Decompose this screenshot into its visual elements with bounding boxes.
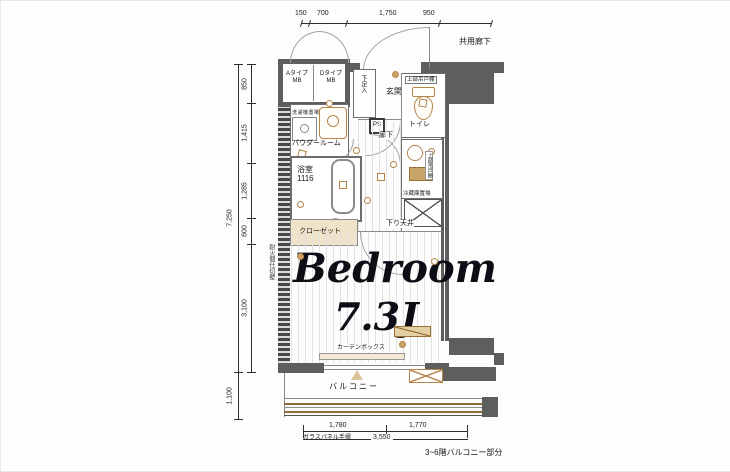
shoe-cabinet-label: 下足入 [359,75,366,93]
left-balcony-tick [234,419,243,420]
dim-left-3100: 3,100 [242,299,249,317]
balcony-partition-pillar [482,397,498,417]
entrance-label: 玄関 [386,87,402,96]
balcony-window-line [324,365,425,366]
kitchen-shelf-label: 上部吊戸棚 [425,151,433,180]
vanity-sink [327,115,339,127]
entrance-door-arc [363,27,430,70]
bedroom-name: Bedroom [293,245,443,292]
toilet-symbol [418,98,427,107]
balcony-rail-line-tan [284,411,498,413]
fridge-label: 冷蔵庫置場 [403,191,431,197]
symbol-dot [326,100,333,107]
bathroom-drain-symbol [297,201,304,208]
dim-top-150: 150 [295,10,307,17]
meter-box-a-sub: MB [293,78,302,84]
kitchen-sink [407,145,423,161]
right-bottom-block [449,338,494,355]
symbol-dot [392,71,399,78]
balcony-rail-line [284,415,498,416]
floor-plan: 150 700 1,750 950 7,250 850 1,415 1,285 … [0,0,730,472]
bathtub-drain [339,181,347,189]
meter-box-a-type: Aタイプ [286,71,308,77]
dim-left-850: 850 [242,78,249,90]
left-seg-tick [247,372,256,373]
balcony-rail-line-tan [284,403,498,405]
bottom-dim-tick [303,425,304,438]
symbol-dot [399,341,406,348]
counter-shelf [394,326,431,337]
fire-wall-label: 耐火間仕切壁 [267,244,274,280]
meter-box-door-arc [290,31,320,63]
common-corridor-label: 共用廊下 [459,37,491,46]
top-dim-line [301,23,491,24]
toilet-shelf-label: 上部吊戸棚 [405,76,437,84]
symbol-dot [431,258,438,265]
left-total-dim-line [238,64,239,372]
laundry-label: 洗濯機置場 [292,111,320,117]
balcony-note-label: 3~6階バルコニー部分 [425,448,502,457]
curtain-box [319,353,405,360]
meter-box-d: Dタイプ MB [318,71,344,85]
dim-top-700: 700 [317,10,329,17]
bottom-wall-left [278,363,324,373]
left-seg-tick [247,244,256,245]
left-seg-tick [247,64,256,65]
meter-box-door-arc [319,31,349,63]
hallway-label: 廊下 [379,132,393,140]
dim-left-600: 600 [242,225,249,237]
dim-left-1100: 1,100 [227,387,234,405]
symbol-dot [390,161,397,168]
bathroom-label: 浴室 1116 [297,165,314,183]
bottom-dim-tick [467,425,468,438]
dim-bottom-total: 3,550 [371,434,393,441]
symbol-dot [297,253,304,260]
dim-top-1750: 1,750 [379,10,397,17]
ac-unit-space [409,369,443,383]
meter-box-d-type: Dタイプ [320,71,342,77]
dim-left-1285: 1,285 [242,182,249,200]
left-seg-tick [247,103,256,104]
entrance-door-leaf [429,27,430,69]
top-dim-tick [490,20,493,27]
balcony-rail-line [284,398,498,399]
symbol-dot [353,147,360,154]
toilet-label: トイレ [409,121,430,129]
left-seg-tick [247,218,256,219]
dim-top-950: 950 [423,10,435,17]
balcony-triangle-marker [351,370,363,380]
dim-bottom-1780: 1,780 [329,422,347,429]
symbol-square [377,173,385,181]
dim-bottom-1770: 1,770 [409,422,427,429]
balcony-label: バルコニー [329,382,379,391]
dim-left-1415: 1,415 [242,124,249,142]
meter-box-d-sub: MB [327,78,336,84]
left-balcony-dim-line [238,372,239,419]
right-wall-block [444,62,494,104]
fire-partition-wall [278,63,290,371]
dropped-ceiling-label: 下り天井 [386,220,414,228]
curtain-box-label: カーテンボックス [337,345,385,352]
washing-machine-drum [300,124,309,133]
bathroom-size: 1116 [297,174,314,183]
left-seg-tick [247,163,256,164]
meter-box-divider [313,65,314,101]
symbol-dot [364,197,371,204]
bathroom-name: 浴室 [297,165,313,174]
right-bottom-nub [494,353,504,365]
balcony-rail-line [284,407,498,408]
dim-left-total: 7,250 [227,209,234,227]
balcony-side-wall [441,367,496,381]
left-dim-endtick [234,64,243,65]
meter-box-a: Aタイプ MB [284,71,310,85]
